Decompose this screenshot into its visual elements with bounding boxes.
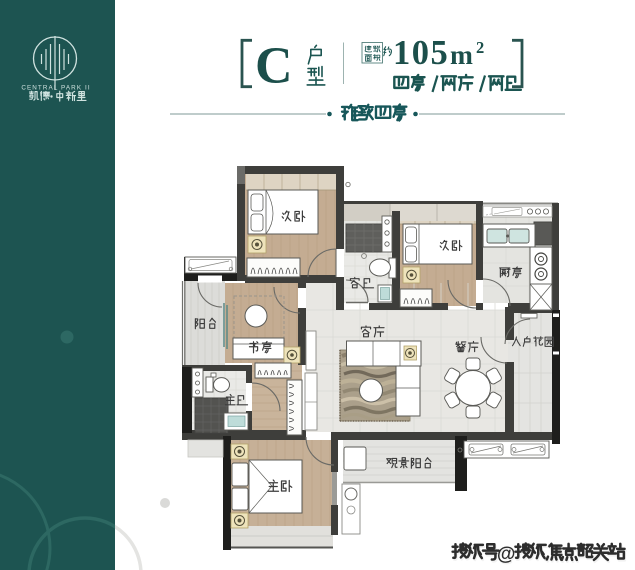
svg-text:CENTRAL PARK II: CENTRAL PARK II <box>21 85 90 92</box>
svg-text:@: @ <box>497 544 516 565</box>
svg-text:C: C <box>255 38 293 95</box>
svg-text:m: m <box>450 39 473 70</box>
svg-text:2: 2 <box>476 38 484 57</box>
svg-text:105: 105 <box>393 34 449 72</box>
